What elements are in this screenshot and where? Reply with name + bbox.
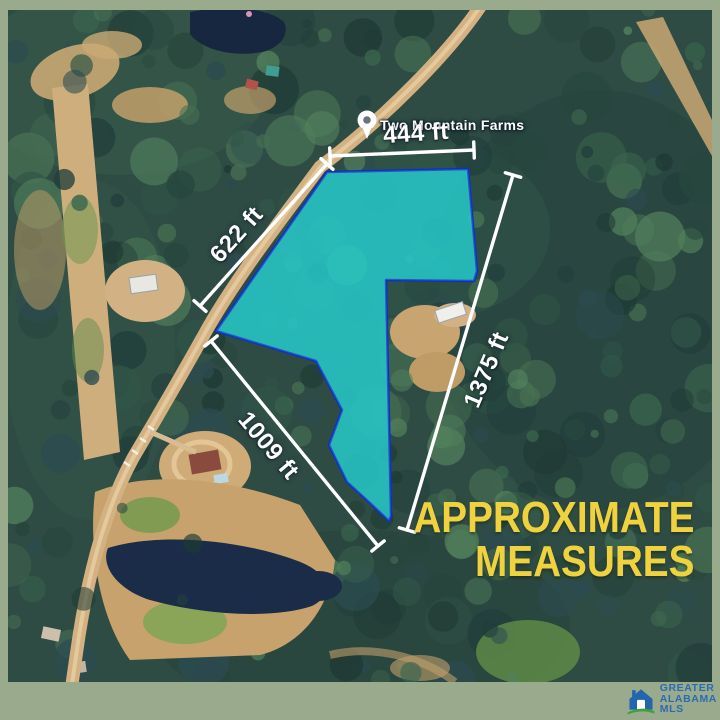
approximate-measures-title: APPROXIMATE MEASURES — [413, 496, 694, 584]
flyer-frame: Two Mountain Farms 444 ft 622 ft 1009 ft… — [0, 0, 720, 720]
aerial-photo: Two Mountain Farms 444 ft 622 ft 1009 ft… — [8, 10, 712, 682]
title-line-2: MEASURES — [413, 540, 694, 584]
boat-dot — [246, 11, 252, 17]
mls-logo-line3: MLS — [660, 704, 717, 715]
mls-house-icon — [625, 683, 657, 715]
mls-logo-text: GREATER ALABAMA MLS — [660, 683, 717, 715]
title-line-1: APPROXIMATE — [413, 496, 694, 540]
measurement-label-444: 444 ft — [382, 118, 449, 151]
mls-logo: GREATER ALABAMA MLS — [625, 682, 717, 716]
